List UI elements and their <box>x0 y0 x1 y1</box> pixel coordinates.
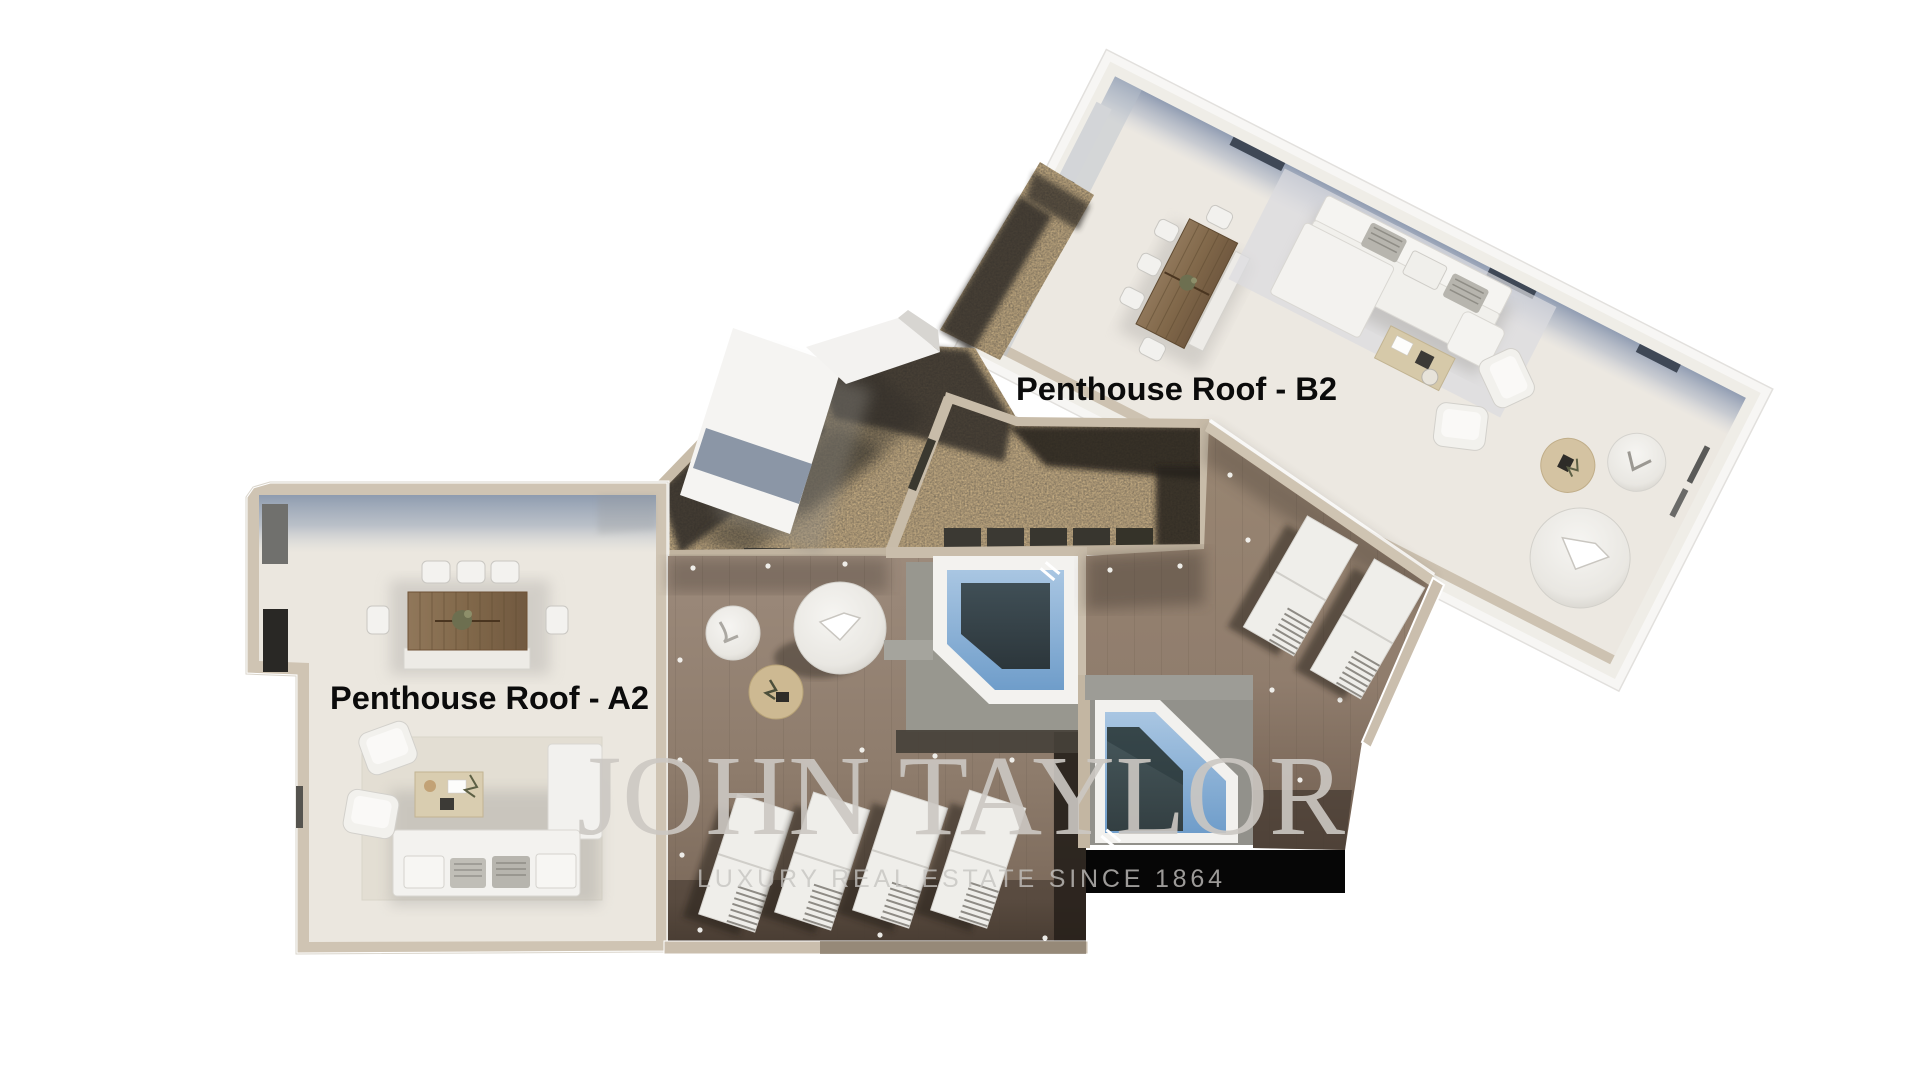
svg-text:JOHN TAYLOR: JOHN TAYLOR <box>577 732 1345 859</box>
svg-text:Penthouse Roof - B2: Penthouse Roof - B2 <box>1016 371 1337 407</box>
svg-text:Penthouse Roof - A2: Penthouse Roof - A2 <box>330 680 649 716</box>
